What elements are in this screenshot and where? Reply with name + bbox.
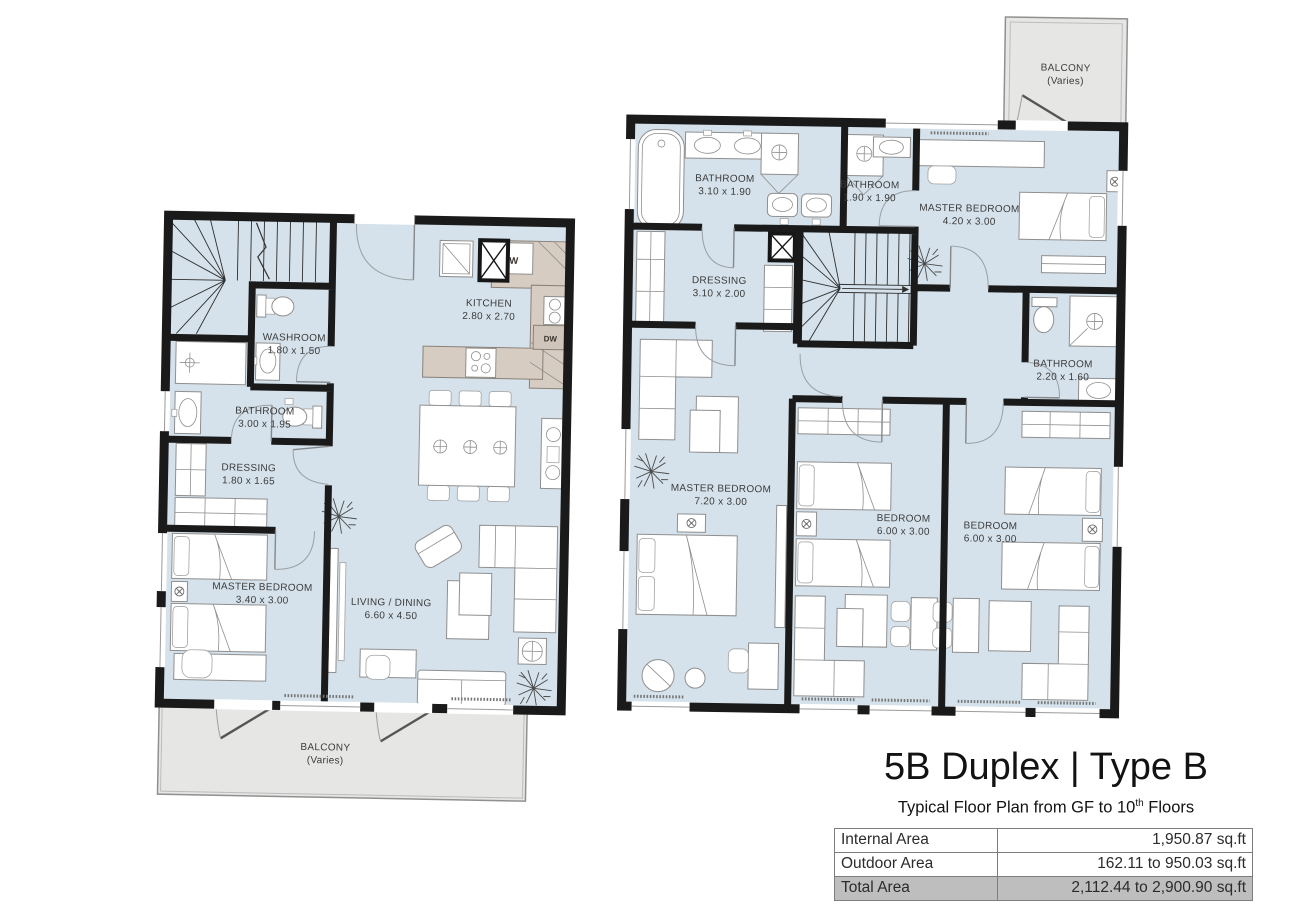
room-dims-master-bedroom: 3.40 x 3.00 — [236, 595, 289, 607]
washbasin-icon — [171, 391, 201, 434]
coffee-table — [988, 601, 1031, 652]
upper-floor-plan: BALCONY (Varies) — [608, 0, 1148, 740]
bathtub-icon — [637, 129, 685, 230]
plan-title: 5B Duplex | Type B — [834, 746, 1258, 789]
table-row-outdoor-area: Outdoor Area 162.11 to 950.03 sq.ft — [835, 852, 1253, 876]
room-dims-bathroom-1: 3.10 x 1.90 — [698, 186, 751, 198]
room-label-master-bedroom: MASTER BEDROOM — [212, 581, 313, 594]
room-label-bathroom-3: BATHROOM — [1033, 358, 1093, 370]
room-dims-kitchen: 2.80 x 2.70 — [462, 311, 515, 323]
sink-icon — [544, 296, 568, 324]
bed — [1019, 192, 1107, 240]
lower-floor-plan: BALCONY (Varies) — [146, 202, 616, 862]
room-label-bathroom: BATHROOM — [235, 406, 295, 418]
room-dims-dressing: 3.10 x 2.00 — [693, 288, 746, 300]
bed — [797, 462, 892, 510]
plan-subtitle-suffix: Floors — [1144, 799, 1194, 817]
washbasin-icon — [873, 137, 910, 158]
area-row-label: Internal Area — [835, 828, 998, 852]
balcony-lower: BALCONY (Varies) — [157, 703, 527, 801]
tv-console — [775, 505, 787, 627]
shower-icon — [1069, 296, 1120, 347]
floor-plan-sheet: BALCONY (Varies) — [0, 0, 1300, 907]
dining-table — [418, 390, 516, 502]
room-label-living-dining: LIVING / DINING — [351, 597, 432, 610]
room-dims-living-dining: 6.60 x 4.50 — [364, 610, 417, 622]
room-label-balcony: BALCONY — [300, 742, 350, 754]
room-dims-dressing: 1.80 x 1.65 — [222, 475, 275, 487]
fridge-icon — [439, 240, 473, 277]
room-label-bathroom-2: BATHROOM — [840, 179, 900, 191]
dressing-table — [360, 649, 417, 680]
stove-icon — [466, 348, 497, 378]
room-dims-bathroom-3: 2.20 x 1.60 — [1036, 372, 1089, 384]
area-row-value: 1,950.87 sq.ft — [998, 828, 1253, 852]
washbasin-icon — [685, 130, 771, 159]
bed — [1005, 467, 1102, 516]
room-label-kitchen: KITCHEN — [466, 298, 512, 310]
room-label-dressing: DRESSING — [692, 275, 747, 287]
room-label-washroom: WASHROOM — [263, 332, 326, 344]
dishwasher-label: DW — [544, 334, 558, 343]
room-label-dressing: DRESSING — [221, 462, 276, 474]
room-label-master-bedroom-1: MASTER BEDROOM — [919, 203, 1019, 216]
area-row-value: 162.11 to 950.03 sq.ft — [998, 852, 1253, 876]
room-dims-balcony: (Varies) — [307, 755, 344, 767]
table-row-internal-area: Internal Area 1,950.87 sq.ft — [835, 828, 1253, 852]
area-row-label: Total Area — [835, 876, 998, 900]
plan-subtitle-sup: th — [1135, 798, 1143, 809]
closet — [1022, 411, 1110, 438]
plan-subtitle-text: Typical Floor Plan from GF to 10 — [898, 799, 1136, 817]
nightstand — [677, 514, 705, 532]
coffee-table — [690, 396, 739, 453]
room-label-bathroom-1: BATHROOM — [695, 173, 755, 185]
table-row-total-area: Total Area 2,112.44 to 2,900.90 sq.ft — [835, 876, 1253, 900]
room-dims-balcony: (Varies) — [1047, 76, 1084, 88]
room-dims-washroom: 1.80 x 1.50 — [268, 345, 321, 357]
bed — [1001, 542, 1100, 591]
room-label-master-bedroom-2: MASTER BEDROOM — [671, 483, 771, 496]
room-dims-bedroom-2: 6.00 x 3.00 — [964, 533, 1017, 545]
room-dims-bathroom-2: 1.90 x 1.90 — [843, 192, 896, 204]
plan-subtitle: Typical Floor Plan from GF to 10th Floor… — [834, 798, 1258, 818]
nightstand — [1082, 518, 1102, 541]
room-dims-master-bedroom-2: 7.20 x 3.00 — [694, 496, 747, 508]
balcony-upper: BALCONY (Varies) — [1004, 17, 1128, 137]
bed — [795, 539, 890, 587]
title-block: 5B Duplex | Type B Typical Floor Plan fr… — [834, 746, 1258, 901]
room-label-balcony: BALCONY — [1041, 63, 1091, 75]
bed — [636, 534, 737, 616]
nightstand — [171, 581, 187, 601]
side-table — [518, 638, 546, 665]
closet — [798, 408, 890, 435]
bed — [172, 533, 268, 580]
room-dims-bathroom: 3.00 x 1.95 — [238, 419, 291, 431]
room-label-bedroom-2: BEDROOM — [963, 520, 1017, 532]
nightstand — [796, 512, 816, 536]
area-table: Internal Area 1,950.87 sq.ft Outdoor Are… — [834, 828, 1253, 901]
bed — [170, 603, 266, 652]
bench — [1041, 256, 1105, 274]
area-row-value: 2,112.44 to 2,900.90 sq.ft — [998, 876, 1253, 900]
room-dims-bedroom-1: 6.00 x 3.00 — [877, 526, 930, 538]
coffee-table — [447, 573, 492, 640]
room-label-bedroom-1: BEDROOM — [877, 513, 931, 525]
shaft-icon — [770, 233, 795, 260]
shaft-icon — [479, 240, 508, 281]
room-dims-master-bedroom-1: 4.20 x 3.00 — [943, 216, 996, 228]
shower-icon — [175, 341, 246, 384]
area-row-label: Outdoor Area — [835, 852, 998, 876]
washer-label: W — [509, 256, 518, 267]
